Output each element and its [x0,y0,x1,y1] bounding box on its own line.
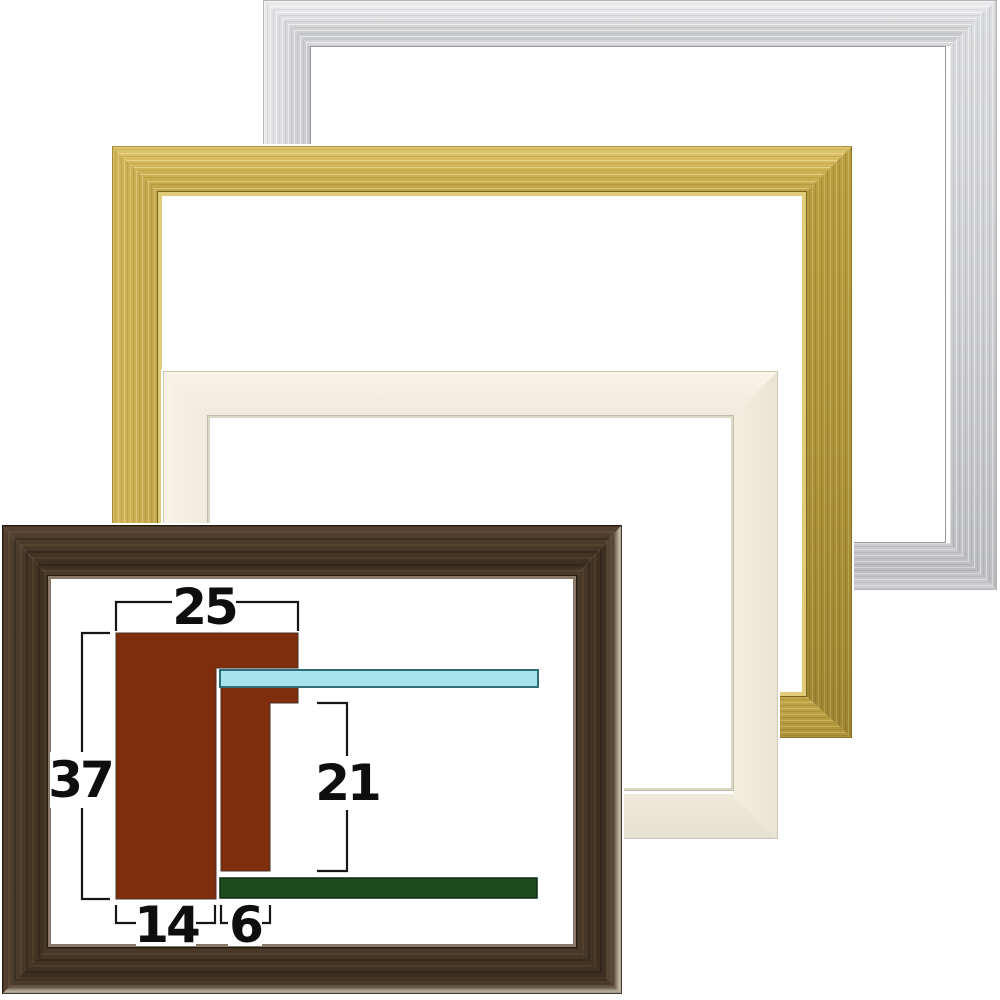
backboard-bar [220,878,537,898]
silver-frame-bar-top [264,0,996,46]
product-image-canvas: 25 37 21 14 6 [0,0,1000,1000]
dimension-label-left-height: 37 [48,751,112,809]
glass-pane-bar [220,670,538,687]
dimension-label-top-width: 25 [172,578,236,636]
cross-section-diagram: 25 37 21 14 6 [0,520,600,1000]
dimension-label-bottom-left: 14 [134,896,199,954]
gold-frame-bar-right [806,146,852,738]
dimension-label-bottom-right: 6 [229,896,262,954]
dimension-label-inner-height: 21 [315,754,379,812]
cream-frame-bar-top [163,371,778,416]
cream-frame-bar-right [733,371,778,839]
silver-frame-bar-right [950,0,996,589]
gold-frame-bar-top [112,146,852,192]
moulding-profile-lip [221,687,298,871]
